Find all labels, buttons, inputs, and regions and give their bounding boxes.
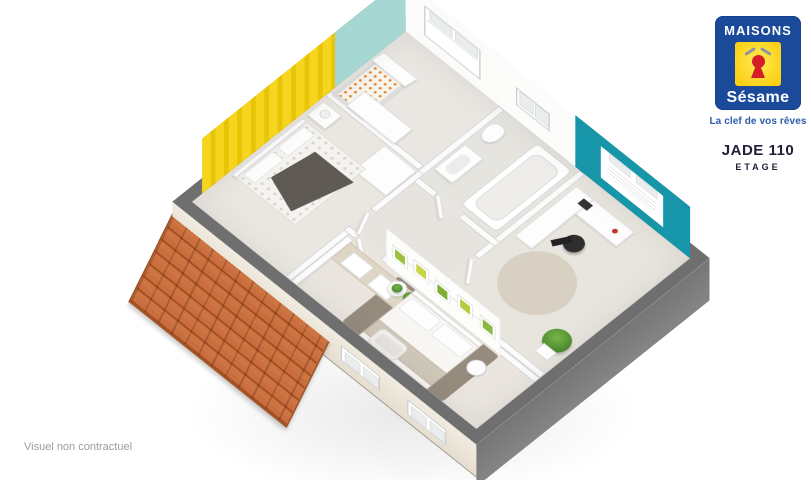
master-side-table-left — [383, 277, 411, 300]
brand-tagline: La clef de vos rêves — [702, 116, 811, 127]
office-chair — [558, 231, 589, 256]
office-rug-round — [481, 238, 594, 328]
brand-block: MAISONS Sésame La clef de vos rêves JADE… — [702, 16, 811, 172]
master-armchair — [366, 327, 410, 362]
wall-yellow-landing-b — [285, 229, 350, 281]
master-side-table-right — [462, 356, 490, 379]
logo-maisons-text: MAISONS — [715, 23, 801, 38]
office-plant — [536, 324, 578, 358]
master-armchair-seat — [373, 333, 404, 358]
door-master-bedroom — [356, 238, 366, 262]
vanity-basin-2 — [367, 273, 401, 300]
bathroom-window-pane-2 — [535, 103, 549, 128]
logo-sesame-text: Sésame — [715, 89, 801, 107]
office-plant-pot — [534, 343, 557, 361]
master-closet-doors — [291, 236, 353, 286]
bathroom-window-pane-1 — [519, 91, 533, 116]
facade-window-1-pane — [345, 352, 361, 375]
plan-model-title: JADE 110 — [702, 142, 811, 159]
plan-level-subtitle: ETAGE — [702, 162, 811, 172]
facade-window-1-pane-b — [363, 366, 379, 389]
roof-icon — [760, 47, 772, 55]
vanity-basin-1 — [340, 252, 374, 279]
shelf-art-1 — [392, 244, 408, 270]
facade-window-2-pane — [411, 406, 427, 429]
maisons-sesame-logo: MAISONS Sésame — [715, 16, 801, 110]
poster-canvas: MAISONS Sésame La clef de vos rêves JADE… — [0, 0, 811, 480]
shelf-art-4 — [457, 294, 473, 320]
master-side-table-plant — [389, 282, 405, 294]
shelf-art-3 — [435, 279, 451, 305]
shelf-art-5 — [480, 314, 496, 340]
office-chair-back — [551, 236, 572, 246]
roof-icon — [744, 47, 756, 55]
facade-window-2-pane-b — [430, 421, 446, 444]
keyhole-house-icon — [735, 42, 781, 86]
master-vanity-plant — [400, 290, 420, 306]
keyhole-icon-stem — [751, 65, 765, 78]
shelf-art-2 — [413, 259, 429, 285]
door-office — [465, 258, 474, 284]
disclaimer-text: Visuel non contractuel — [24, 441, 132, 453]
